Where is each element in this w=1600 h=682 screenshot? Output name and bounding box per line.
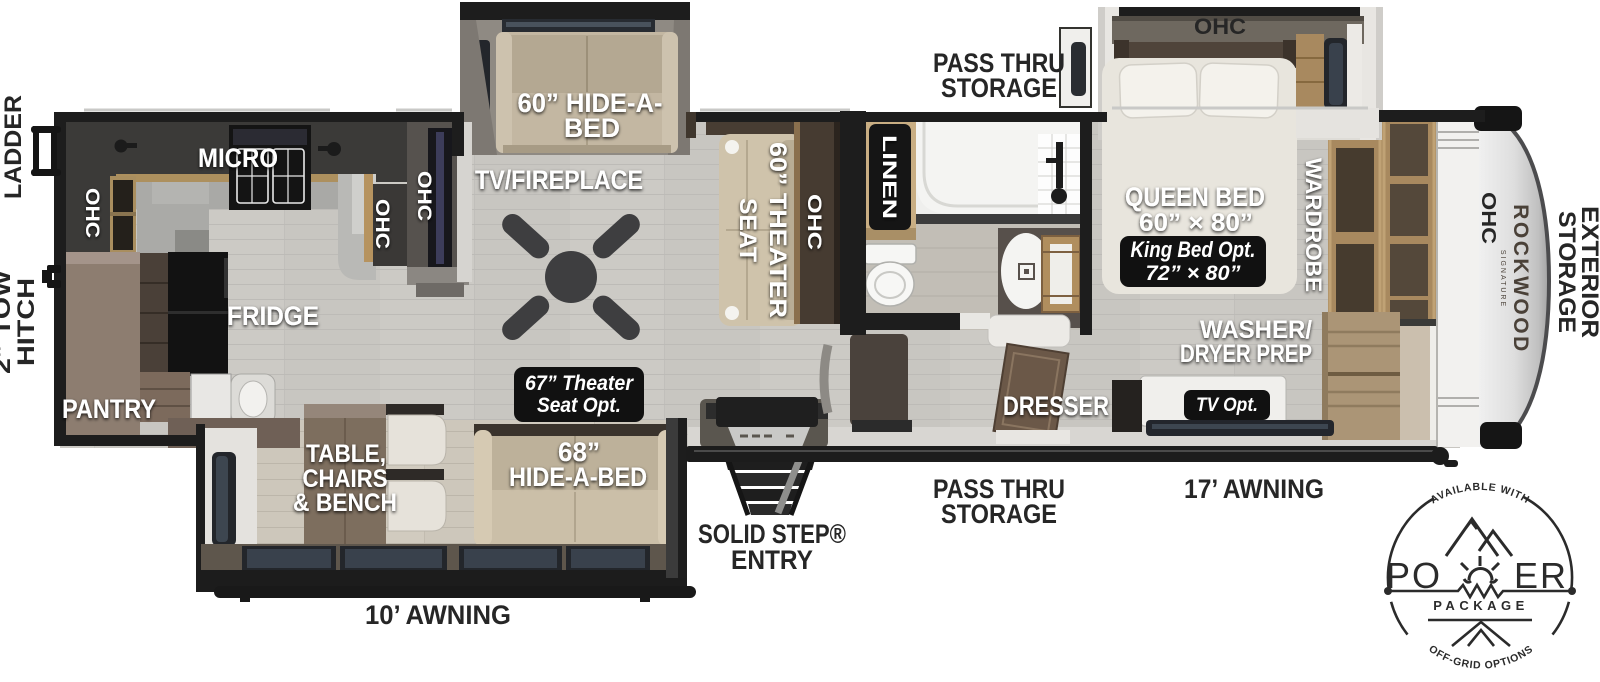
svg-text:OHC: OHC xyxy=(371,199,392,249)
svg-text:60” THEATER: 60” THEATER xyxy=(764,142,791,318)
svg-text:LINEN: LINEN xyxy=(878,135,899,219)
svg-text:STORAGE: STORAGE xyxy=(1553,211,1580,333)
svg-text:OHC: OHC xyxy=(1194,14,1246,39)
svg-text:LADDER: LADDER xyxy=(0,95,27,199)
svg-text:HITCH: HITCH xyxy=(13,278,40,366)
svg-text:QUEEN BED: QUEEN BED xyxy=(1125,182,1265,212)
svg-text:PACKAGE: PACKAGE xyxy=(1433,598,1529,613)
svg-text:DRYER PREP: DRYER PREP xyxy=(1180,340,1312,368)
svg-text:TABLE,: TABLE, xyxy=(306,440,386,468)
svg-text:OHC: OHC xyxy=(81,188,102,238)
svg-text:60” × 80”: 60” × 80” xyxy=(1139,209,1253,237)
svg-text:BED: BED xyxy=(564,113,620,143)
svg-text:TV/FIREPLACE: TV/FIREPLACE xyxy=(475,165,643,195)
svg-text:10’ AWNING: 10’ AWNING xyxy=(365,600,511,630)
svg-text:King Bed Opt.: King Bed Opt. xyxy=(1131,237,1256,262)
svg-text:72” × 80”: 72” × 80” xyxy=(1146,262,1242,285)
svg-text:OHC: OHC xyxy=(1477,192,1499,244)
svg-text:PO: PO xyxy=(1386,555,1442,596)
svg-text:67” Theater: 67” Theater xyxy=(525,372,635,395)
svg-text:ROCKWOOD: ROCKWOOD xyxy=(1509,204,1532,354)
svg-text:TV Opt.: TV Opt. xyxy=(1196,395,1258,416)
svg-text:OHC: OHC xyxy=(803,194,824,250)
svg-text:SEAT: SEAT xyxy=(734,198,761,262)
svg-text:PANTRY: PANTRY xyxy=(62,394,156,424)
svg-text:FRIDGE: FRIDGE xyxy=(227,301,319,331)
svg-text:STORAGE: STORAGE xyxy=(941,499,1057,529)
svg-text:OHC: OHC xyxy=(413,171,434,221)
svg-text:SIGNATURE: SIGNATURE xyxy=(1499,250,1506,308)
svg-text:STORAGE: STORAGE xyxy=(941,73,1057,103)
svg-text:ENTRY: ENTRY xyxy=(731,545,813,575)
svg-text:17’ AWNING: 17’ AWNING xyxy=(1184,474,1324,504)
svg-text:DRESSER: DRESSER xyxy=(1003,391,1109,421)
svg-text:WARDROBE: WARDROBE xyxy=(1301,158,1326,292)
svg-text:Seat Opt.: Seat Opt. xyxy=(537,394,621,417)
svg-text:ER: ER xyxy=(1514,555,1568,596)
svg-text:& BENCH: & BENCH xyxy=(293,489,397,517)
svg-text:HIDE-A-BED: HIDE-A-BED xyxy=(509,462,647,492)
svg-text:MICRO: MICRO xyxy=(198,143,278,173)
